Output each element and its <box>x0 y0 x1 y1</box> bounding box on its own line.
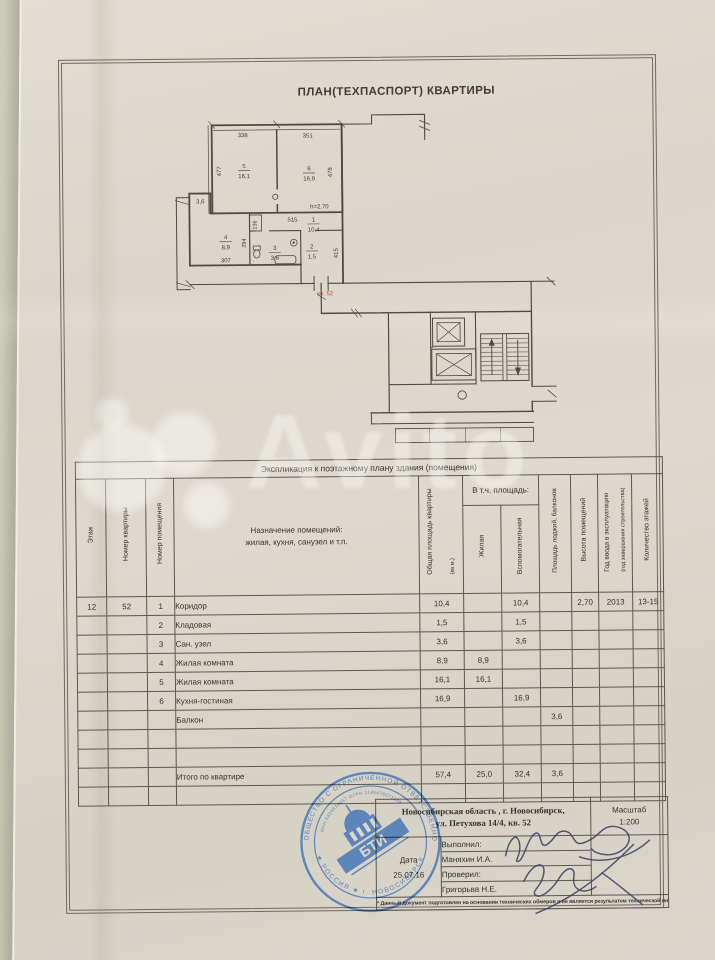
signature-performed <box>505 826 629 861</box>
col-floor-count: Количество этажей <box>643 498 651 564</box>
row-name: Балкон <box>176 708 421 729</box>
stamp-ring-bottom-text: ★ РОССИЯ ★ г. НОВОСИБИРСК <box>315 853 426 897</box>
room1-area: 10,4 <box>308 227 320 233</box>
room4-num: 4 <box>224 235 228 241</box>
col-year: Год ввода в эксплуатацию <box>603 493 611 575</box>
room6-num: 6 <box>307 166 311 172</box>
dim-307: 307 <box>221 258 232 264</box>
apartment-number-label: кв. 52 <box>317 291 334 297</box>
col-room-number: Номер помещения <box>156 503 164 567</box>
bti-round-stamp: ОБЩЕСТВО С ОГРАНИЧЕННОЙ ОТВЕТСТВЕННОСТЬЮ… <box>296 767 445 916</box>
signature-checked <box>524 864 596 896</box>
dim-478: 478 <box>328 167 334 178</box>
row-name: Жилая комната <box>175 651 420 672</box>
col-living: Жилая <box>478 535 486 560</box>
room6-area: 16,9 <box>303 176 315 182</box>
handwritten-signatures <box>483 802 684 919</box>
row-name: Кладовая <box>175 613 420 634</box>
explication-table: Экспликация к поэтажному плану здания (п… <box>75 456 666 807</box>
elevator-shafts <box>431 318 476 380</box>
col-floor: Этаж <box>87 526 95 546</box>
photo-of-document: ПЛАН(ТЕХПАСПОРТ) КВАРТИРЫ <box>0 0 715 960</box>
row-name: Сан. узел <box>175 632 420 653</box>
balcony-area-label: 3,6 <box>196 199 205 205</box>
dim-136: 136 <box>253 220 259 229</box>
floor-plan: 338 351 477 478 3,6 136 294 307 515 415 … <box>166 104 569 453</box>
garbage-chute <box>458 391 466 399</box>
col-auxiliary: Вспомогательная <box>516 517 524 577</box>
dim-338: 338 <box>238 133 249 139</box>
room5-num: 5 <box>242 164 246 170</box>
col-total-area: Общая площадь квартиры <box>426 488 435 577</box>
height-note: h=2,70 <box>310 204 329 210</box>
dim-351: 351 <box>303 133 314 139</box>
col-including-area: В т.ч. площадь: <box>462 475 538 506</box>
room3-area: 3,6 <box>271 256 280 262</box>
document-content: ПЛАН(ТЕХПАСПОРТ) КВАРТИРЫ <box>0 0 715 960</box>
col-purpose-line2: жилая, кухня, санузел и т.п. <box>175 535 419 549</box>
row-name: Жилая комната <box>175 670 420 691</box>
dim-477: 477 <box>217 166 223 177</box>
row-name: Коридор <box>175 594 420 615</box>
col-apartment-number: Номер квартиры <box>122 507 130 564</box>
wall-partition <box>277 130 278 189</box>
room4-area: 8,9 <box>222 245 231 251</box>
room2-num: 2 <box>310 244 314 250</box>
col-balcony-area: Площадь лоджий, балконов <box>551 488 559 576</box>
dim-515: 515 <box>287 218 298 224</box>
room5-area: 16,1 <box>238 174 250 180</box>
room1-num: 1 <box>312 217 316 223</box>
dim-415: 415 <box>334 248 340 259</box>
balcony-outline <box>176 198 190 290</box>
staircase <box>481 333 529 380</box>
room2-area: 1,5 <box>308 254 317 260</box>
room3-num: 3 <box>273 246 277 252</box>
row-name: Кухня-гостиная <box>176 689 421 710</box>
dim-294: 294 <box>242 238 248 247</box>
svg-text:★ РОССИЯ ★ г. НОВОСИБИРСК: ★ РОССИЯ ★ г. НОВОСИБИРСК <box>315 853 426 897</box>
col-height: Высота помещений <box>580 498 588 565</box>
